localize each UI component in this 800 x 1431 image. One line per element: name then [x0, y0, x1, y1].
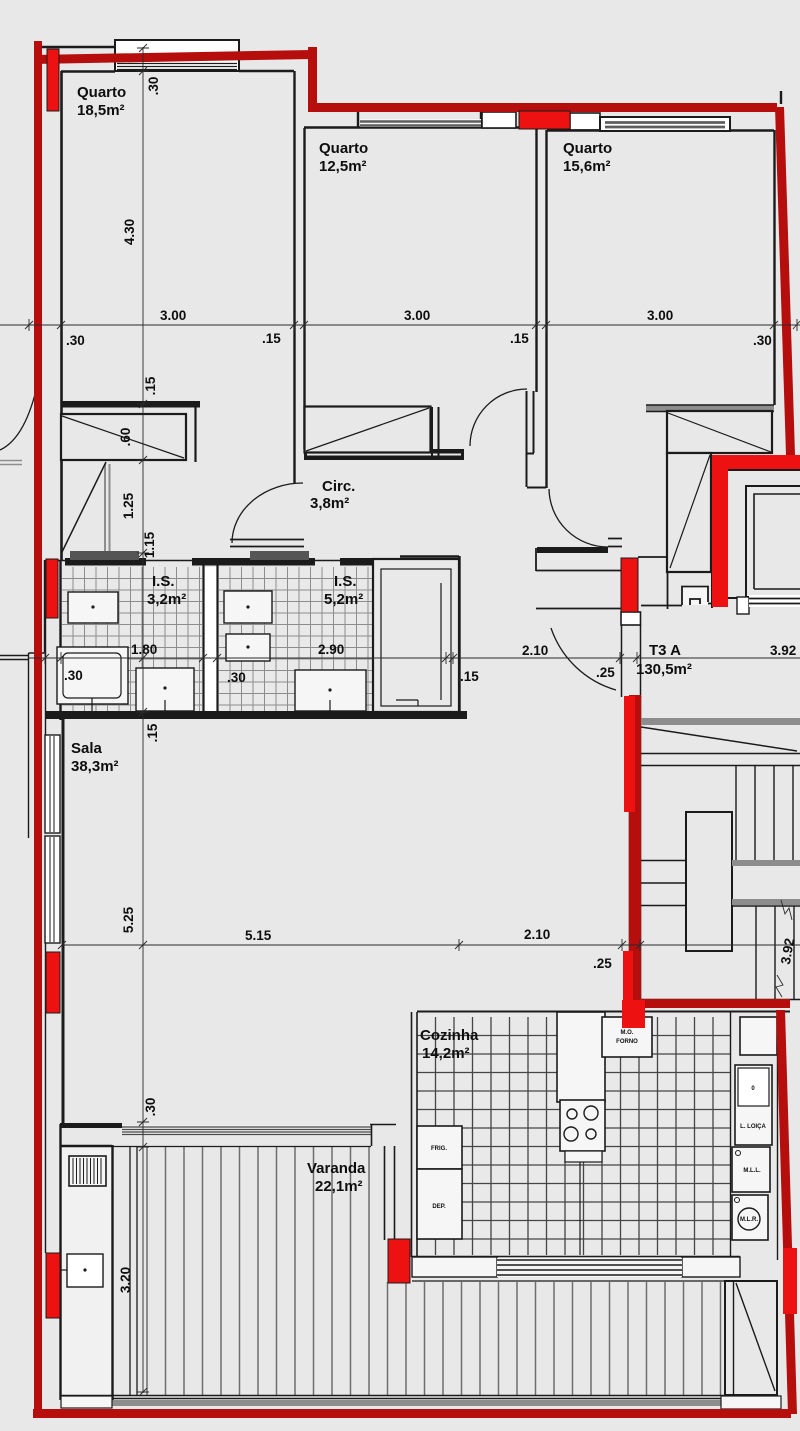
svg-text:130,5m²: 130,5m²: [636, 661, 692, 678]
svg-text:1.15: 1.15: [142, 531, 157, 558]
svg-text:Quarto: Quarto: [319, 140, 368, 157]
svg-text:Quarto: Quarto: [77, 84, 126, 101]
svg-text:.30: .30: [143, 1098, 158, 1117]
svg-text:15,6m²: 15,6m²: [563, 158, 611, 175]
svg-text:22,1m²: 22,1m²: [315, 1178, 363, 1195]
svg-text:M.L.R.: M.L.R.: [740, 1217, 758, 1223]
svg-text:38,3m²: 38,3m²: [71, 758, 119, 775]
svg-text:.30: .30: [753, 333, 772, 348]
svg-text:FRIG.: FRIG.: [431, 1146, 447, 1152]
svg-text:L. LOIÇA: L. LOIÇA: [740, 1124, 766, 1130]
svg-text:3.00: 3.00: [160, 308, 186, 323]
svg-text:Sala: Sala: [71, 740, 103, 757]
svg-text:Cozinha: Cozinha: [420, 1027, 479, 1044]
svg-text:M.O.: M.O.: [621, 1030, 634, 1036]
svg-text:3,8m²: 3,8m²: [310, 495, 349, 512]
svg-text:Varanda: Varanda: [307, 1160, 366, 1177]
svg-text:5.25: 5.25: [121, 906, 136, 933]
svg-text:Circ.: Circ.: [322, 478, 355, 495]
svg-text:1.25: 1.25: [121, 492, 136, 519]
svg-text:3.92: 3.92: [770, 643, 796, 658]
svg-text:14,2m²: 14,2m²: [422, 1045, 470, 1062]
svg-text:3.00: 3.00: [647, 308, 673, 323]
svg-text:1.80: 1.80: [131, 642, 157, 657]
svg-text:12,5m²: 12,5m²: [319, 158, 367, 175]
svg-text:.25: .25: [596, 665, 615, 680]
svg-text:3.00: 3.00: [404, 308, 430, 323]
svg-text:.15: .15: [143, 376, 158, 395]
svg-text:.30: .30: [64, 668, 83, 683]
svg-text:2.90: 2.90: [318, 642, 344, 657]
svg-text:.15: .15: [145, 723, 160, 742]
svg-text:2.10: 2.10: [524, 927, 550, 942]
svg-text:T3 A: T3 A: [649, 642, 681, 659]
svg-text:.15: .15: [460, 669, 479, 684]
svg-text:5,2m²: 5,2m²: [324, 591, 363, 608]
svg-text:5.15: 5.15: [245, 928, 272, 943]
svg-text:.15: .15: [510, 331, 529, 346]
svg-text:FORNO: FORNO: [616, 1039, 638, 1045]
svg-text:3,2m²: 3,2m²: [147, 591, 186, 608]
svg-text:I.S.: I.S.: [334, 573, 357, 590]
svg-text:Quarto: Quarto: [563, 140, 612, 157]
svg-text:M.L.L.: M.L.L.: [743, 1168, 761, 1174]
svg-text:DEP.: DEP.: [432, 1204, 446, 1210]
svg-text:.15: .15: [262, 331, 281, 346]
svg-text:I.S.: I.S.: [152, 573, 175, 590]
svg-text:2.10: 2.10: [522, 643, 548, 658]
svg-text:.60: .60: [118, 428, 133, 447]
svg-text:.25: .25: [593, 956, 612, 971]
svg-text:18,5m²: 18,5m²: [77, 102, 125, 119]
svg-text:4.30: 4.30: [122, 219, 137, 245]
svg-text:.30: .30: [227, 670, 246, 685]
svg-text:.30: .30: [66, 333, 85, 348]
svg-text:3.20: 3.20: [118, 1267, 133, 1293]
svg-text:.30: .30: [146, 77, 161, 96]
